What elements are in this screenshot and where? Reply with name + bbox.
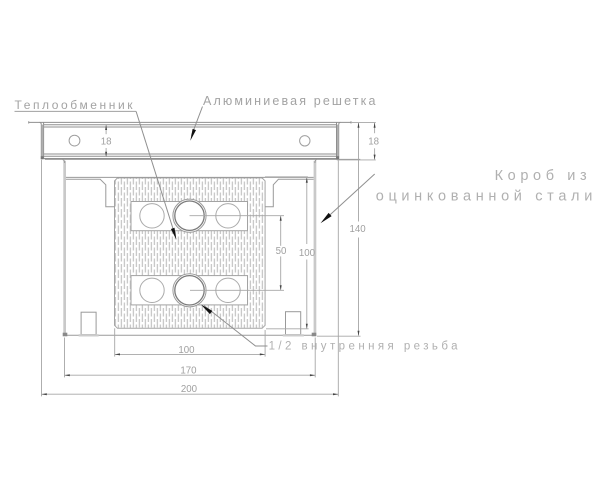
svg-text:18: 18	[368, 136, 379, 147]
svg-text:200: 200	[181, 384, 198, 395]
svg-text:Короб из: Короб из	[495, 168, 587, 184]
svg-text:100: 100	[178, 345, 195, 356]
svg-text:50: 50	[276, 246, 287, 257]
svg-text:170: 170	[180, 365, 197, 376]
svg-text:18: 18	[101, 136, 112, 147]
svg-text:Алюминиевая решетка: Алюминиевая решетка	[203, 94, 376, 108]
svg-text:140: 140	[350, 224, 367, 235]
svg-text:100: 100	[299, 248, 316, 259]
